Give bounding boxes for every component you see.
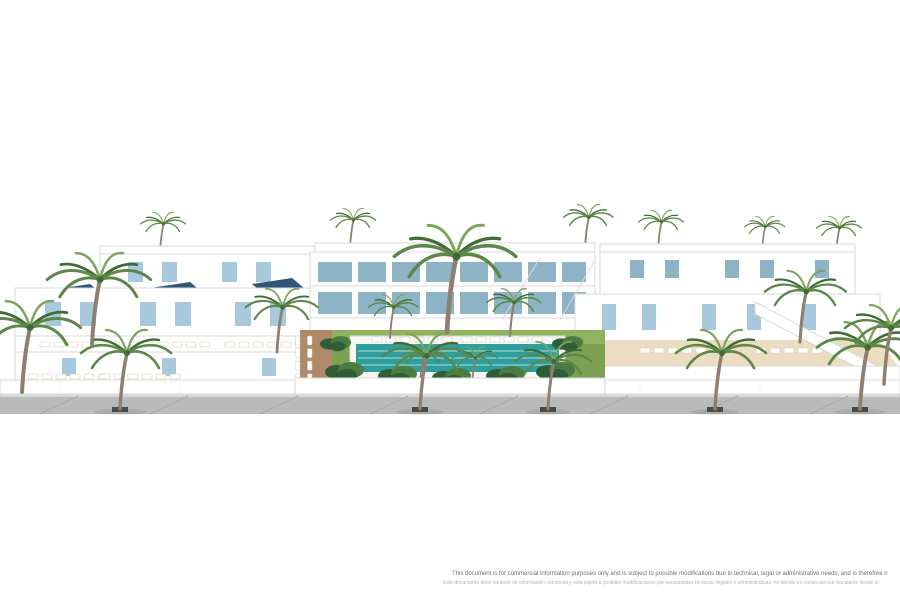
roof-right xyxy=(600,244,855,252)
render-illustration xyxy=(0,0,900,600)
disclaimer-line-es: Este documento tiene carácter de informa… xyxy=(443,580,879,586)
planter-wall xyxy=(295,378,605,394)
page: This document is for commercial informat… xyxy=(0,0,900,600)
building-block-right xyxy=(575,244,900,392)
disclaimer-line-en: This document is for commercial informat… xyxy=(452,571,888,577)
render-svg xyxy=(0,0,900,600)
